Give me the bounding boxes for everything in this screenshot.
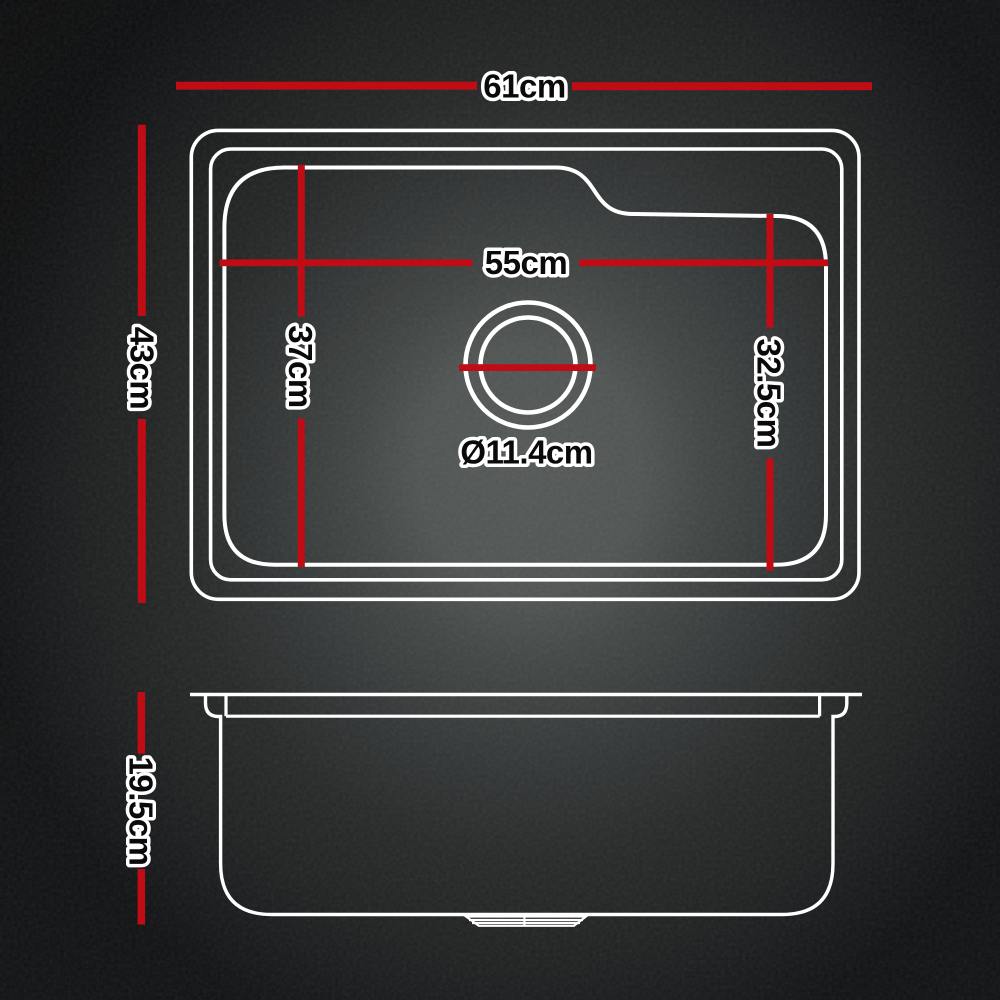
svg-text:61cm: 61cm [483,68,565,105]
svg-text:Ø11.4cm: Ø11.4cm [460,434,592,471]
svg-text:19.5cm: 19.5cm [123,757,160,866]
svg-text:37cm: 37cm [282,325,319,407]
svg-text:43cm: 43cm [123,327,160,409]
svg-text:55cm: 55cm [485,244,567,281]
svg-text:32.5cm: 32.5cm [751,339,788,448]
